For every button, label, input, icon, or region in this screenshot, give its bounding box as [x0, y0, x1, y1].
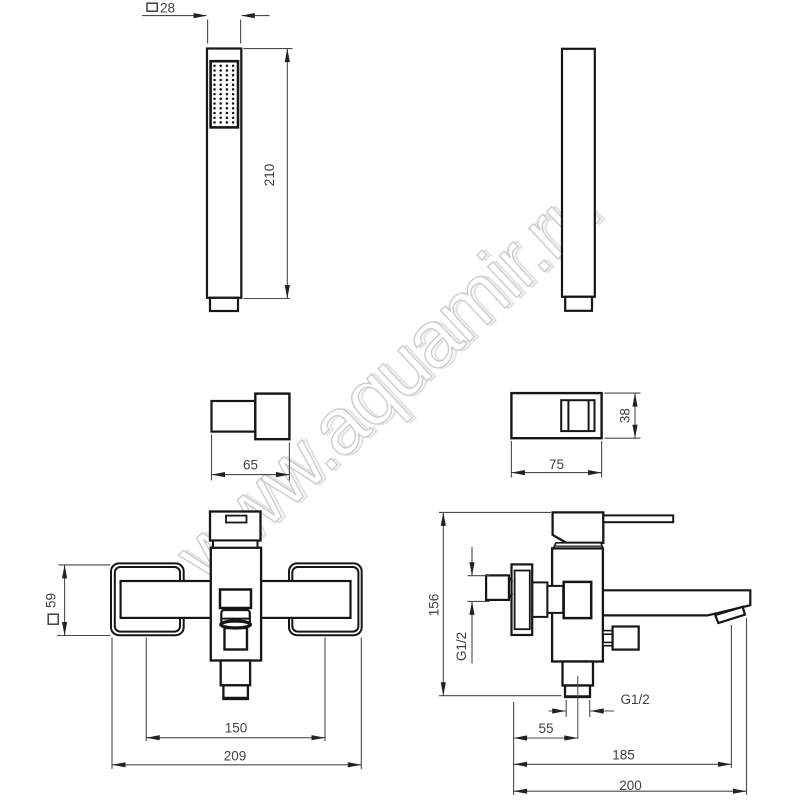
svg-text:200: 200: [619, 778, 642, 793]
svg-text:156: 156: [427, 594, 442, 617]
svg-text:38: 38: [618, 408, 633, 423]
svg-text:209: 209: [224, 749, 247, 764]
svg-text:210: 210: [262, 164, 277, 187]
svg-text:G1/2: G1/2: [621, 692, 650, 707]
svg-text:G1/2: G1/2: [454, 632, 469, 661]
svg-text:28: 28: [160, 1, 175, 16]
svg-text:150: 150: [225, 721, 248, 736]
svg-text:55: 55: [538, 721, 553, 736]
svg-text:185: 185: [612, 748, 635, 763]
svg-text:75: 75: [549, 457, 564, 472]
svg-text:65: 65: [243, 458, 258, 473]
svg-text:59: 59: [44, 593, 59, 608]
